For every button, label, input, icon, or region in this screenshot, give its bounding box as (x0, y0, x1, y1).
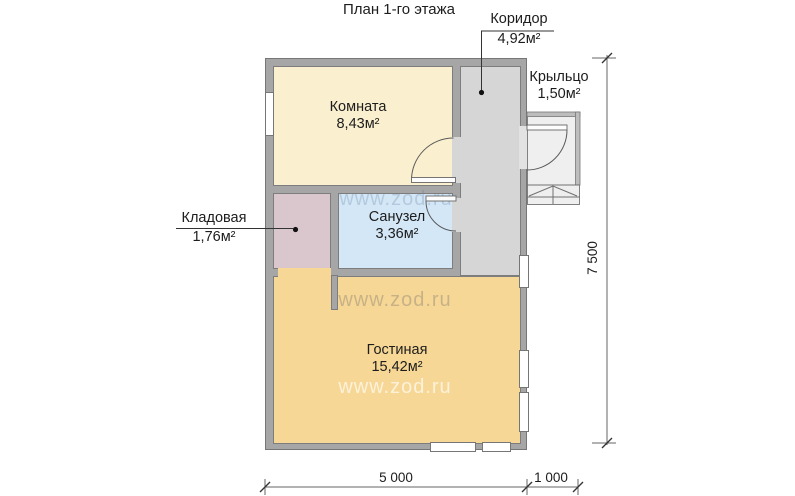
komnata-name: Комната (308, 99, 408, 116)
kladovaya-area: 1,76м² (174, 229, 254, 246)
watermark: www.zod.ru (316, 188, 476, 211)
window-left (265, 92, 274, 136)
porch-platform (527, 112, 580, 205)
kryltso-label: Крыльцо 1,50м² (520, 69, 598, 103)
sanuzel-name: Санузел (347, 209, 447, 226)
window-right-2 (519, 350, 529, 388)
sanuzel-label: Санузел 3,36м² (347, 209, 447, 243)
kladovaya-name: Кладовая (174, 210, 254, 227)
komnata-label: Комната 8,43м² (308, 99, 408, 133)
kladovaya-doorway-gap (278, 268, 331, 277)
dimension-right-ticks (602, 53, 612, 448)
kladovaya-label: Кладовая 1,76м² (174, 210, 254, 246)
gostinaya-label: Гостиная 15,42м² (347, 342, 447, 376)
gostinaya-area: 15,42м² (347, 359, 447, 376)
komnata-area: 8,43м² (308, 116, 408, 133)
dimension-width-porch: 1 000 (511, 470, 591, 485)
dimension-width-main: 5 000 (356, 470, 436, 485)
watermark: www.zod.ru (315, 376, 475, 399)
kryltso-name: Крыльцо (520, 69, 598, 86)
room-koridor (460, 66, 521, 276)
koridor-label: Коридор 4,92м² (481, 11, 557, 48)
window-bottom-1 (430, 442, 476, 452)
gostinaya-name: Гостиная (347, 342, 447, 359)
plan-title: План 1-го этажа (299, 1, 499, 19)
sanuzel-area: 3,36м² (347, 226, 447, 243)
window-right-1 (519, 255, 529, 288)
floor-plan-canvas: План 1-го этажа www.zod.ru www.zod.ru ww… (0, 0, 795, 496)
komnata-doorway-gap (452, 137, 461, 183)
kryltso-area: 1,50м² (520, 86, 598, 103)
watermark: www.zod.ru (315, 289, 475, 312)
window-bottom-2 (482, 442, 511, 452)
koridor-name: Коридор (481, 11, 557, 28)
dimension-height-total: 7 500 (585, 223, 601, 293)
koridor-area: 4,92м² (481, 31, 557, 48)
window-right-3 (519, 392, 529, 432)
